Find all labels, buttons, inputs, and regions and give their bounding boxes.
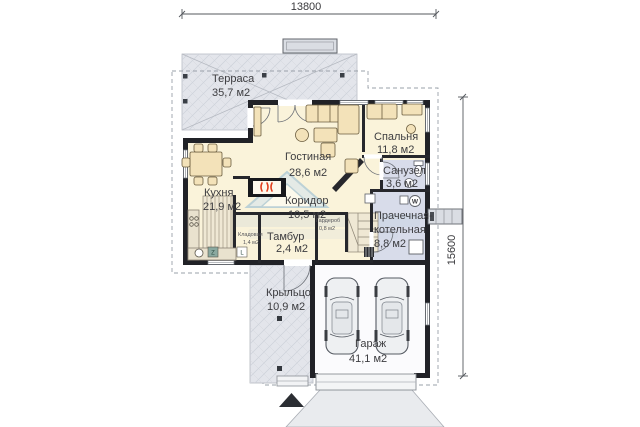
dimension-right [458,94,468,379]
chair [208,177,217,185]
chair [194,144,203,152]
room-porch-name: Крыльцо [266,287,311,299]
room-laundry-area: 8,8 м2 [374,238,406,250]
chimney-top [283,39,337,53]
room-laundry-name2: котельная [374,224,426,236]
dining-table [190,152,222,176]
coffee-table [314,128,337,142]
appliance-z-label: Z [211,251,215,257]
dimension-right-label: 15600 [446,235,458,266]
floor-plan-drawing: Z L W [0,0,640,427]
room-bedroom-name: Спальня [374,131,418,143]
room-kitchen-name: Кухня [204,187,233,199]
driveway-area [286,390,444,427]
room-wardrobe-area: 0,8 м2 [319,226,335,232]
bedroom-cabinet [402,104,422,115]
dimension-top-label: 13800 [291,1,322,13]
room-porch-area: 10,9 м2 [267,301,305,313]
room-living-name: Гостиная [285,151,331,163]
room-vestibule-name: Тамбур [267,231,304,243]
room-laundry-name1: Прачечная- [374,210,433,222]
room-pantry-name: Кладовая [238,232,263,238]
room-kitchen-area: 21,9 м2 [203,201,241,213]
garage-door [316,372,416,390]
tv-stand [254,107,261,136]
room-bedroom-area: 11,8 м2 [377,144,414,156]
chair [223,158,231,167]
room-wardrobe-name: Гардероб [316,218,340,224]
floor-plan-page: Z L W [0,0,640,427]
laundry-sink-icon [365,194,375,203]
chair [194,177,203,185]
chair-living [345,159,358,173]
boiler-icon [409,240,423,254]
room-corridor-name: Коридор [285,195,328,207]
chair [208,144,217,152]
porch-area [250,265,313,386]
room-bathroom-area: 3,6 м2 [386,178,418,190]
fireplace-icon [248,178,286,197]
sink-icon [195,249,203,257]
north-arrow-icon [279,393,304,407]
sofa-living-corner [338,105,359,134]
room-vestibule-area: 2,4 м2 [276,243,308,255]
room-garage-area: 41,1 м2 [349,353,387,365]
room-living-area: 28,6 м2 [289,167,327,179]
room-terrace-name: Терраса [212,73,255,85]
chair [182,158,190,167]
washer-label: W [412,199,419,206]
room-terrace-area: 35,7 м2 [212,87,250,99]
laundry-unit-icon [400,196,408,204]
room-garage-name: Гараж [355,338,387,350]
room-bathroom-name: Санузел [383,165,426,177]
room-pantry-area: 1,4 м2 [243,240,259,246]
side-table [296,129,309,142]
floor-drain-icon [364,247,374,257]
flue-block [428,209,462,224]
